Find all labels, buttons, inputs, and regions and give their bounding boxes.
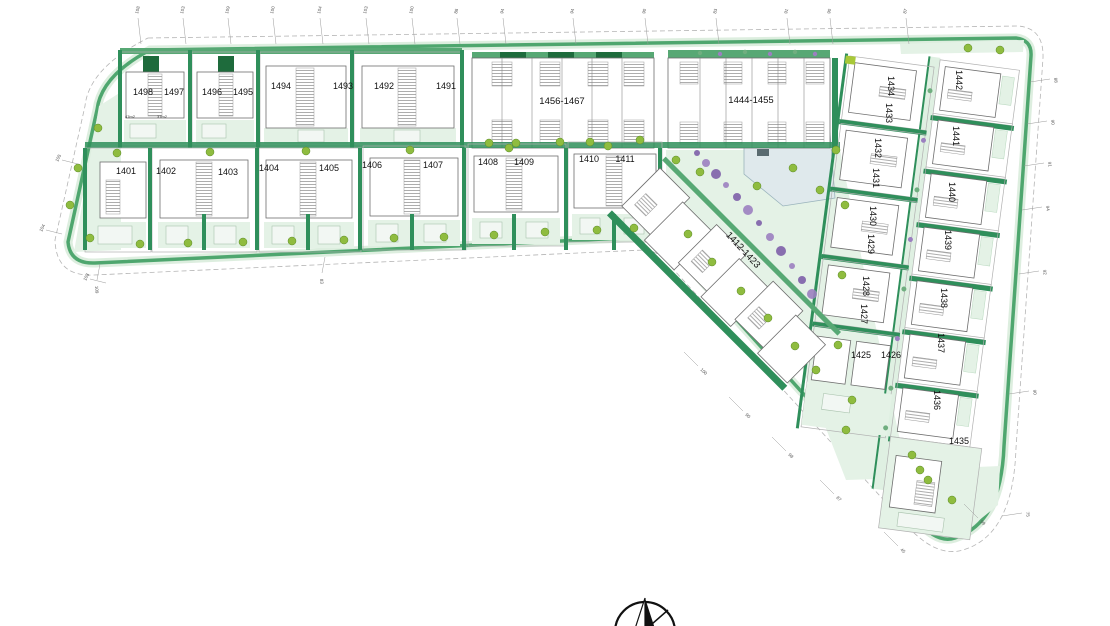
- tree-icon: [239, 238, 247, 246]
- staircase: [296, 68, 314, 126]
- plot-label: 1408: [478, 157, 498, 167]
- plot-label: 1411: [615, 154, 634, 164]
- villa-pool: [318, 226, 340, 244]
- tree-icon: [136, 240, 144, 248]
- block-label: 1444-1455: [728, 95, 773, 106]
- tree-icon: [604, 142, 612, 150]
- tree-icon: [684, 230, 692, 238]
- shrub-icon: [776, 246, 786, 256]
- tree-icon: [764, 314, 772, 322]
- dimension-label: 90: [1050, 119, 1056, 125]
- plot-label: 1498: [133, 87, 153, 97]
- shrub-icon: [756, 220, 762, 226]
- plot-label: 1429: [866, 234, 876, 254]
- villa-pool: [394, 130, 420, 142]
- dimension-leader: [138, 18, 141, 44]
- villa-pool: [130, 124, 156, 138]
- dimension-label: 94: [499, 8, 505, 15]
- shrub-icon: [743, 50, 747, 54]
- tree-icon: [586, 138, 594, 146]
- hedge-divider: [188, 50, 192, 148]
- staircase: [806, 62, 824, 84]
- staircase: [680, 122, 698, 144]
- hedge-divider: [460, 50, 464, 148]
- plot-label: 1434: [886, 76, 896, 96]
- plot-label: 1440: [947, 182, 957, 202]
- dimension-leader: [1002, 513, 1022, 516]
- tree-icon: [789, 164, 797, 172]
- tree-icon: [288, 237, 296, 245]
- plot-label: 1406: [362, 160, 382, 170]
- dimension-label: 109: [94, 286, 100, 294]
- hedge-divider: [350, 50, 354, 148]
- plot-label: 1442: [954, 70, 964, 90]
- dimension-leader: [228, 18, 231, 44]
- hedge-strip: [85, 142, 840, 148]
- dimension-leader: [457, 18, 460, 44]
- tree-icon: [406, 146, 414, 154]
- tree-icon: [816, 186, 824, 194]
- shrub-icon: [766, 233, 774, 241]
- plot-label: 1428: [861, 276, 871, 296]
- tree-icon: [737, 287, 745, 295]
- dimension-label: 94: [569, 8, 575, 15]
- tree-icon: [672, 156, 680, 164]
- site-plan-drawing: 1081031091001041031008894949083919087105…: [0, 0, 1110, 626]
- tree-icon: [390, 234, 398, 242]
- staircase: [540, 62, 560, 86]
- dimension-leader: [320, 18, 323, 44]
- north-compass-icon: [615, 598, 675, 626]
- dimension-label: 91: [783, 8, 789, 15]
- tree-icon: [490, 231, 498, 239]
- plot-label: 1431: [871, 168, 881, 188]
- plot-label: 1432: [873, 138, 883, 158]
- staircase: [624, 62, 644, 86]
- tree-icon: [964, 44, 972, 52]
- tree-icon: [66, 201, 74, 209]
- dimension-leader: [90, 279, 106, 283]
- plot-label: 1441: [951, 126, 961, 146]
- area-label: 37m2: [157, 114, 168, 119]
- plot-label: 1491: [436, 81, 456, 91]
- dimension-label: 90: [1032, 389, 1038, 395]
- dimension-label: 104: [38, 223, 46, 232]
- hedge-divider: [148, 148, 152, 250]
- tree-icon: [708, 258, 716, 266]
- villa-pool: [98, 226, 132, 244]
- plot-label: 1410: [579, 154, 599, 164]
- pool-pavilion: [757, 149, 769, 156]
- dimension-leader: [1019, 271, 1039, 274]
- dimension-label: 104: [316, 5, 323, 14]
- dimension-leader: [183, 18, 186, 44]
- plot-label: 1427: [859, 304, 869, 324]
- staircase: [724, 122, 742, 144]
- tree-icon: [485, 139, 493, 147]
- shrub-icon: [723, 182, 729, 188]
- dimension-label: 83: [319, 279, 324, 285]
- plot-label: 1407: [423, 160, 443, 170]
- dimension-label: 92: [1042, 269, 1048, 275]
- shrub-icon: [789, 263, 795, 269]
- area-label: 47m2: [125, 114, 136, 119]
- site-plan-page: 1081031091001041031008894949083919087105…: [0, 0, 1110, 626]
- shrub-icon: [807, 289, 817, 299]
- dimension-label: 88: [1053, 77, 1059, 83]
- tree-icon: [86, 234, 94, 242]
- dimension-label: 103: [362, 5, 369, 14]
- staircase: [196, 162, 212, 216]
- hedge-divider: [118, 50, 122, 148]
- dimension-leader: [729, 397, 743, 411]
- shrub-icon: [718, 52, 722, 56]
- plot-label: 1401: [116, 166, 136, 176]
- tree-icon: [832, 146, 840, 154]
- dimension-label: 87: [835, 495, 842, 502]
- plot-label: 1426: [881, 350, 901, 360]
- staircase: [398, 68, 416, 126]
- staircase: [106, 180, 120, 214]
- plot-label: 1494: [271, 81, 291, 91]
- hedge-divider: [306, 214, 310, 250]
- plot-label: 1430: [868, 206, 878, 226]
- dimension-label: 94: [1045, 205, 1051, 211]
- tree-icon: [753, 182, 761, 190]
- tree-icon: [838, 271, 846, 279]
- dimension-label: 100: [408, 5, 415, 14]
- plot-label: 1438: [939, 288, 949, 308]
- shrub-icon: [813, 52, 817, 56]
- hedge-divider: [410, 214, 414, 250]
- tree-icon: [440, 233, 448, 241]
- tree-icon: [74, 164, 82, 172]
- planter: [845, 55, 856, 64]
- staircase: [724, 62, 742, 84]
- dimension-label: 100: [269, 5, 276, 14]
- plot-label: 1497: [164, 87, 184, 97]
- dimension-label: 108: [134, 5, 141, 14]
- tree-icon: [924, 476, 932, 484]
- hedge-divider: [512, 214, 516, 250]
- plot-label: 1495: [233, 87, 253, 97]
- staircase: [680, 62, 698, 84]
- tree-icon: [636, 136, 644, 144]
- dimension-leader: [366, 18, 369, 44]
- dimension-leader: [820, 480, 834, 494]
- tree-icon: [630, 224, 638, 232]
- villa-pool: [202, 124, 226, 138]
- dimension-leader: [322, 257, 325, 273]
- dimension-label: 100: [699, 367, 708, 376]
- shrub-icon: [698, 51, 702, 55]
- dimension-label: 90: [826, 8, 832, 15]
- shrub-icon: [702, 159, 710, 167]
- plot-label: 1492: [374, 81, 394, 91]
- dimension-label: 98: [787, 452, 794, 459]
- plot-label: 1403: [218, 167, 238, 177]
- tree-icon: [791, 342, 799, 350]
- dimension-leader: [412, 18, 415, 44]
- plot-label: 1437: [936, 333, 946, 353]
- shrub-icon: [793, 50, 797, 54]
- dimension-label: 105: [54, 153, 62, 162]
- dimension-leader: [273, 18, 276, 44]
- tree-icon: [512, 139, 520, 147]
- tree-icon: [113, 149, 121, 157]
- tree-icon: [696, 168, 704, 176]
- dimension-label: 91: [1047, 161, 1053, 167]
- dimension-label: 90: [641, 8, 647, 15]
- dimension-label: 87: [902, 8, 908, 15]
- villa-pool: [214, 226, 236, 244]
- tree-icon: [908, 451, 916, 459]
- dimension-label: 45: [899, 547, 906, 554]
- building: [851, 341, 890, 389]
- staircase: [588, 62, 608, 86]
- plot-label: 1433: [884, 103, 894, 123]
- tree-icon: [302, 147, 310, 155]
- tree-icon: [948, 496, 956, 504]
- block-label: 1456-1467: [539, 96, 584, 107]
- tree-icon: [94, 124, 102, 132]
- tree-icon: [505, 144, 513, 152]
- dimension-leader: [684, 352, 698, 366]
- dimension-label: 103: [179, 5, 186, 14]
- plot-label: 1405: [319, 163, 339, 173]
- shrub-icon: [798, 276, 806, 284]
- tree-icon: [556, 138, 564, 146]
- tree-icon: [848, 396, 856, 404]
- villa-pool: [298, 130, 324, 142]
- villa-pool: [822, 393, 852, 413]
- tree-icon: [812, 366, 820, 374]
- tree-icon: [834, 341, 842, 349]
- dimension-leader: [772, 437, 786, 451]
- tree-icon: [184, 239, 192, 247]
- hedge-strip: [120, 48, 462, 54]
- plot-label: 1436: [932, 390, 942, 410]
- tree-icon: [842, 426, 850, 434]
- plot-label: 1404: [259, 163, 279, 173]
- staircase: [914, 480, 935, 506]
- hedge-divider: [256, 50, 260, 148]
- shrub-icon: [733, 193, 741, 201]
- dimension-label: 83: [712, 8, 718, 15]
- dimension-leader: [62, 160, 78, 164]
- dimension-leader: [46, 230, 62, 234]
- staircase: [806, 122, 824, 144]
- hedge-divider: [462, 148, 466, 250]
- tree-icon: [841, 201, 849, 209]
- tree-icon: [340, 236, 348, 244]
- hedge-divider: [83, 148, 87, 250]
- plot-label: 1425: [851, 350, 871, 360]
- dimension-label: 109: [224, 5, 231, 14]
- dimension-label: 103: [82, 272, 90, 281]
- staircase: [300, 162, 316, 216]
- hedge-divider: [202, 214, 206, 250]
- dimension-leader: [884, 532, 898, 546]
- tree-icon: [593, 226, 601, 234]
- plot-label: 1496: [202, 87, 222, 97]
- shrub-icon: [694, 150, 700, 156]
- plot-label: 1439: [943, 230, 953, 250]
- shrub-icon: [711, 169, 721, 179]
- tree-icon: [541, 228, 549, 236]
- shrub-icon: [743, 205, 753, 215]
- staircase: [404, 160, 420, 214]
- tree-icon: [206, 148, 214, 156]
- hedge-divider: [564, 148, 568, 250]
- staircase: [768, 122, 786, 144]
- dimension-leader: [503, 18, 506, 44]
- dimension-label: 88: [453, 8, 459, 15]
- staircase: [768, 62, 786, 84]
- plot-label: 1435: [949, 436, 969, 446]
- plot-label: 1493: [333, 81, 353, 91]
- tree-icon: [916, 466, 924, 474]
- plot-label: 1409: [514, 157, 534, 167]
- tree-icon: [996, 46, 1004, 54]
- dimension-label: 90: [744, 412, 751, 419]
- dimension-label: 75: [1025, 511, 1031, 517]
- plot-label: 1402: [156, 166, 176, 176]
- shrub-icon: [768, 52, 772, 56]
